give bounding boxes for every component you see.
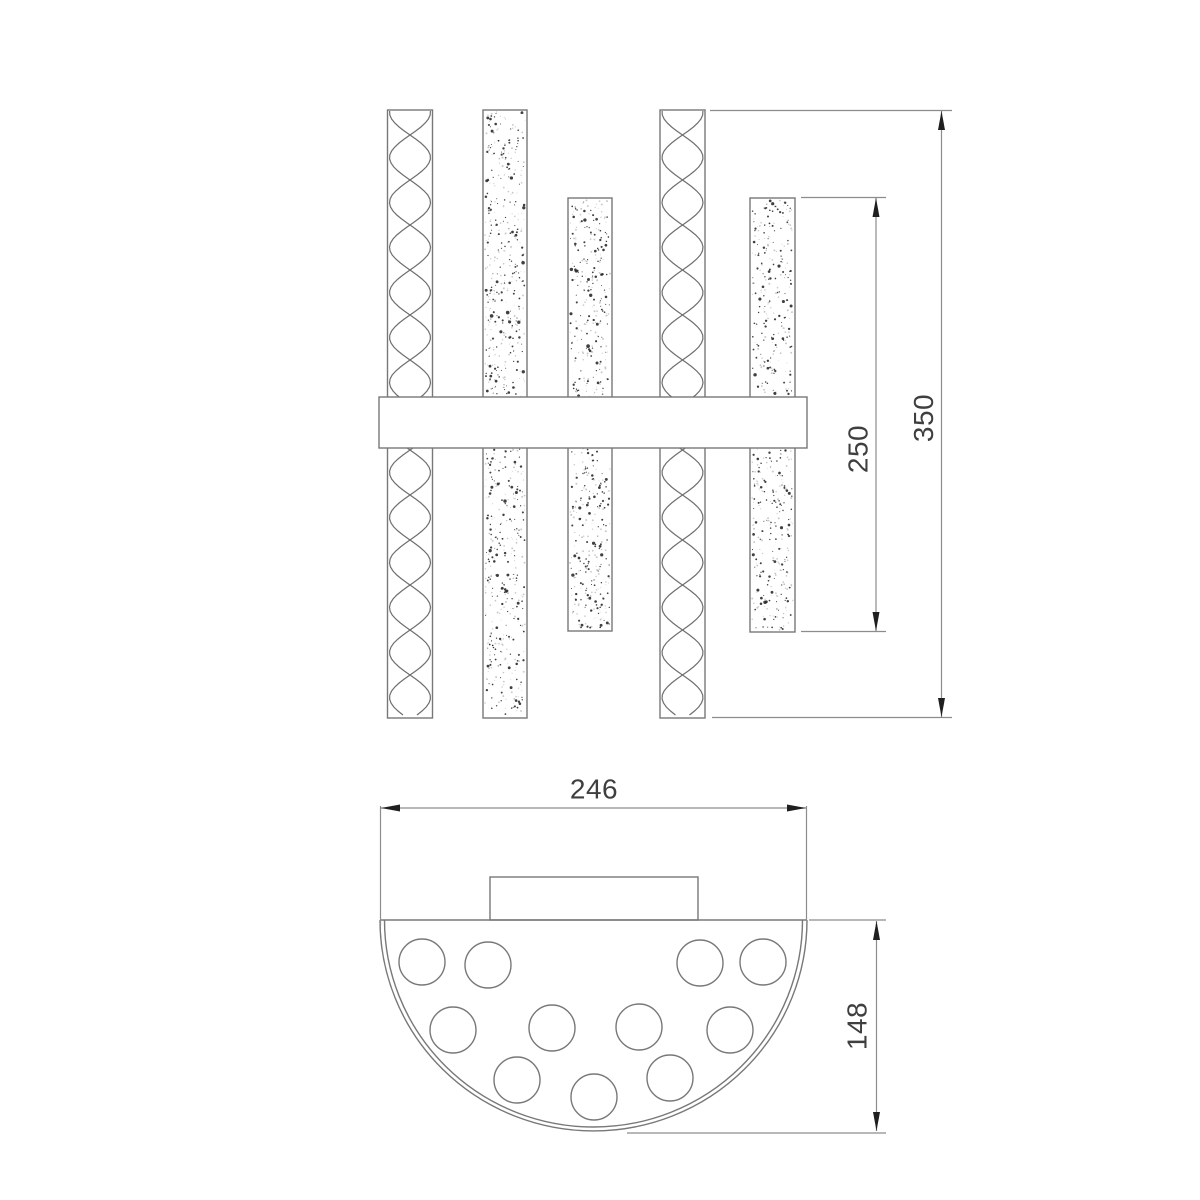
dimension-250: 250 <box>801 198 886 632</box>
mounting-plate <box>490 877 698 920</box>
front-view: 250 350 <box>379 110 952 718</box>
crystal-hole <box>494 1057 540 1103</box>
top-view: 246 148 <box>380 774 886 1134</box>
crystal-hole <box>740 939 786 985</box>
crystal-hole <box>465 942 511 988</box>
crystal-holes <box>399 939 786 1120</box>
crystal-hole <box>430 1007 476 1053</box>
crystal-hole <box>399 939 445 985</box>
dimension-label-350: 350 <box>908 394 939 442</box>
dim-350-arrow-up-icon <box>938 111 945 130</box>
shade-inner-arc <box>385 920 803 1127</box>
crystal-hole <box>616 1004 662 1050</box>
crystal-hole <box>529 1005 575 1051</box>
dim-350-arrow-down-icon <box>938 698 945 717</box>
dim-148-arrow-down-icon <box>873 1112 880 1131</box>
lamp-technical-drawing: 250 350 <box>0 0 1200 1200</box>
dim-250-arrow-down-icon <box>873 612 880 631</box>
dim-246-arrow-left-icon <box>381 805 400 812</box>
crystal-hole <box>677 940 723 986</box>
dim-246-arrow-right-icon <box>787 805 806 812</box>
dim-148-arrow-up-icon <box>873 921 880 940</box>
technical-drawing-page: 250 350 <box>0 0 1200 1200</box>
crystal-hole <box>707 1007 753 1053</box>
dim-250-arrow-up-icon <box>873 198 880 217</box>
mounting-bar <box>379 397 807 448</box>
dimension-label-250: 250 <box>843 425 874 473</box>
crystal-hole <box>571 1074 617 1120</box>
dimension-label-148: 148 <box>842 1002 873 1050</box>
crystal-hole <box>647 1055 693 1101</box>
dimension-label-246: 246 <box>570 774 618 805</box>
